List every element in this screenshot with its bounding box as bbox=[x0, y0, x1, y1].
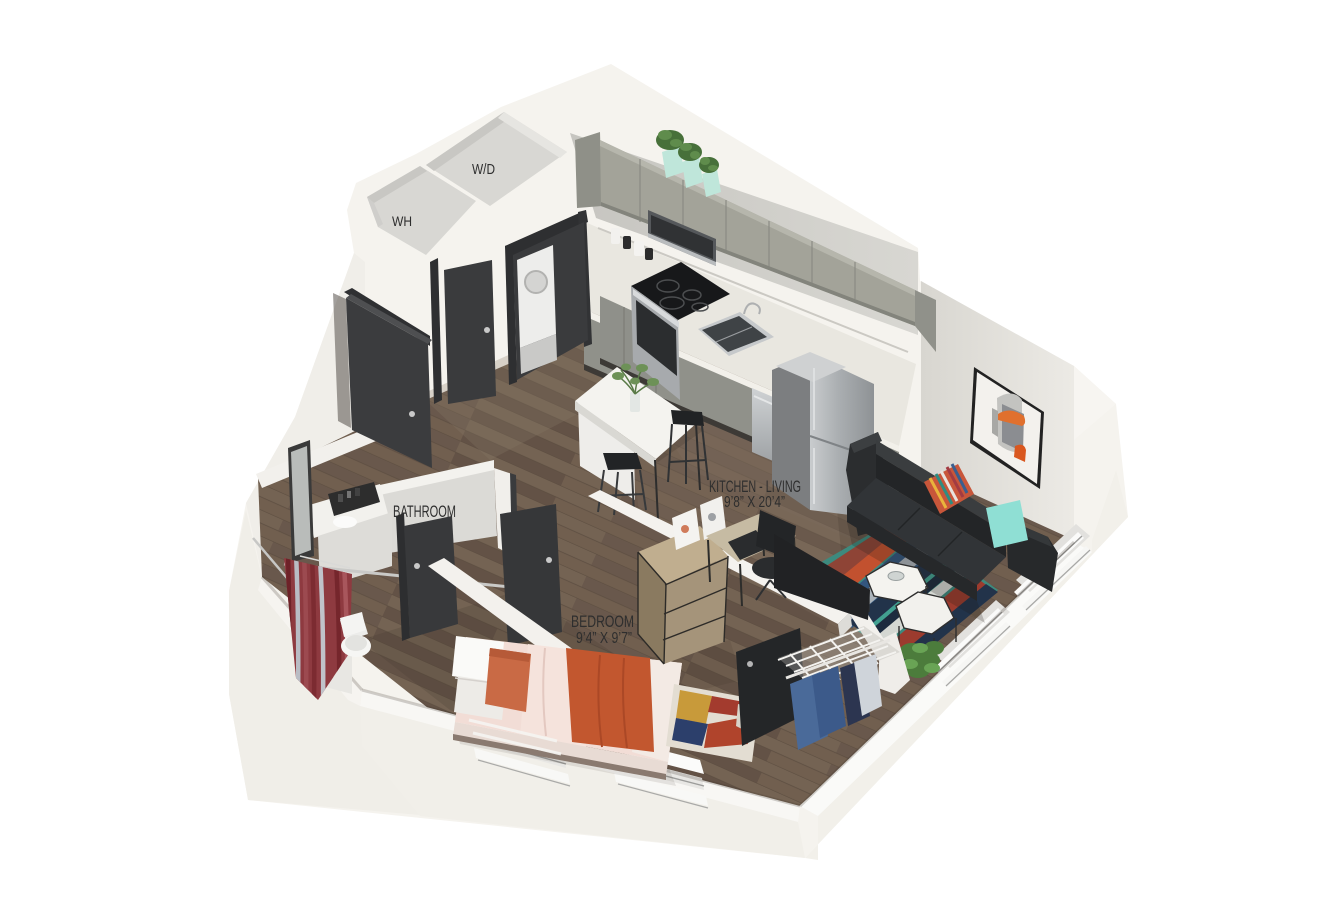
svg-text:BEDROOM: BEDROOM bbox=[571, 612, 634, 631]
svg-text:W/D: W/D bbox=[472, 161, 495, 178]
svg-text:9’4” X 9’7”: 9’4” X 9’7” bbox=[576, 630, 632, 647]
svg-text:BATHROOM: BATHROOM bbox=[393, 502, 456, 521]
svg-text:9’8” X 20’4”: 9’8” X 20’4” bbox=[724, 494, 785, 511]
svg-text:WH: WH bbox=[392, 213, 412, 229]
